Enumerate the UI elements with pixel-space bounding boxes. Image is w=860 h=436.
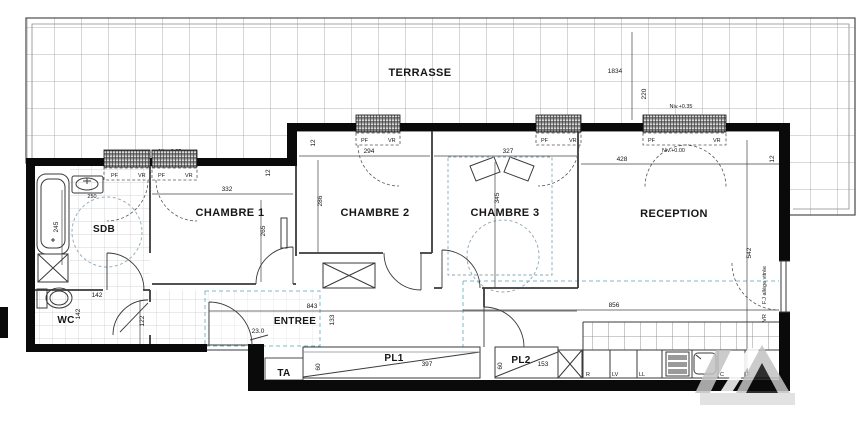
wc-label: WC	[57, 315, 74, 326]
floor-plan-drawing: TERRASSE 1834 220 Niv.+0.35 Niv.+0.35 25…	[0, 0, 860, 436]
ch1-width-dim: 332	[222, 186, 233, 193]
reception-depth-dim: 542	[746, 247, 753, 258]
wc-depth-dim: 142	[75, 308, 82, 319]
reception-label: RECEPTION	[640, 208, 708, 220]
window-pf-label: PF	[541, 138, 549, 144]
bathtub	[37, 174, 69, 254]
window-ch1: PF VR	[152, 150, 197, 221]
door-ch2	[384, 253, 421, 290]
door-reception	[484, 307, 524, 347]
oven-appliance	[666, 352, 689, 376]
interior-level-label: Niv.+0.00	[662, 148, 685, 154]
wall12-dim-b: 12	[310, 139, 317, 147]
east-vr-label: VR	[762, 314, 768, 322]
entree-length-dim: 843	[307, 303, 318, 310]
kitchen-tiling	[583, 322, 780, 350]
pl1-label: PL1	[384, 353, 403, 364]
wc-passage-dim: 122	[139, 315, 146, 326]
kitchen-duct-box	[558, 350, 582, 378]
washer-label: LL	[639, 372, 645, 378]
pl1-width-dim: 397	[422, 361, 433, 368]
wall-south-step	[248, 344, 264, 391]
radiator	[281, 218, 287, 248]
ch2-width-dim: 294	[364, 148, 375, 155]
door-ch1	[256, 247, 293, 284]
sdb-depth-dim: 245	[53, 221, 60, 232]
chambre1-label: CHAMBRE 1	[196, 207, 265, 219]
pl1-depth-dim: 60	[315, 363, 322, 371]
sdb-label: SDB	[93, 224, 115, 235]
wall12-dim-c: 12	[769, 155, 776, 163]
svg-text:23.0: 23.0	[252, 328, 265, 335]
pl2-label: PL2	[511, 355, 530, 366]
wall-neighbor-stub	[0, 307, 8, 338]
window-vr-label: VR	[713, 138, 721, 144]
hall-duct-box	[323, 263, 375, 288]
terrasse-label: TERRASSE	[388, 67, 451, 79]
dishwasher-label: LV	[612, 372, 619, 378]
terrace-level-right: Niv.+0.35	[670, 104, 693, 110]
wall-west	[26, 158, 35, 352]
wc-width-dim: 142	[92, 292, 103, 299]
reception-width-dim: 428	[617, 156, 628, 163]
cooktop-label: C	[720, 372, 724, 378]
pl2-depth-dim: 60	[497, 362, 504, 370]
window-vr-label: VR	[388, 138, 396, 144]
reception-length-dim: 856	[609, 302, 620, 309]
chambre2-label: CHAMBRE 2	[341, 207, 410, 219]
ta-label: TA	[277, 368, 290, 379]
ch1-depth-dim: 265	[260, 225, 267, 236]
entree-width-dim: 133	[329, 314, 336, 325]
pl2-width-dim: 153	[538, 361, 549, 368]
window-pf-label: PF	[361, 138, 369, 144]
window-pf-label: PF	[111, 173, 119, 179]
wall-east	[779, 123, 790, 391]
wall12-dim-a: 12	[265, 169, 272, 177]
ch3-width-dim: 327	[503, 148, 514, 155]
entree-label: ENTREE	[274, 316, 316, 327]
window-pf-label: PF	[158, 173, 166, 179]
window-vr-label: VR	[569, 138, 577, 144]
sink-dim: 250	[87, 194, 96, 200]
sdb-duct-box	[38, 254, 68, 282]
floor-plan-page: TERRASSE 1834 220 Niv.+0.35 Niv.+0.35 25…	[0, 0, 860, 436]
ch3-turning-circle	[467, 220, 539, 292]
wall-south-left	[26, 344, 207, 352]
window-ch3: PF VR	[536, 115, 581, 186]
window-reception: PF VR Niv.+0.00	[643, 115, 726, 187]
chambre3-label: CHAMBRE 3	[471, 207, 540, 219]
terrace-depth-dim: 220	[641, 88, 648, 99]
east-glazing-label: F.J allège vitrée	[762, 266, 768, 304]
window-pf-label: PF	[648, 138, 656, 144]
ch2-depth-dim: 286	[317, 195, 324, 206]
terrace-length-dim: 1834	[608, 68, 623, 75]
window-vr-label: VR	[138, 173, 146, 179]
ch3-depth-dim: 345	[494, 192, 501, 203]
window-vr-label: VR	[185, 173, 193, 179]
fridge-label: R	[586, 372, 590, 378]
